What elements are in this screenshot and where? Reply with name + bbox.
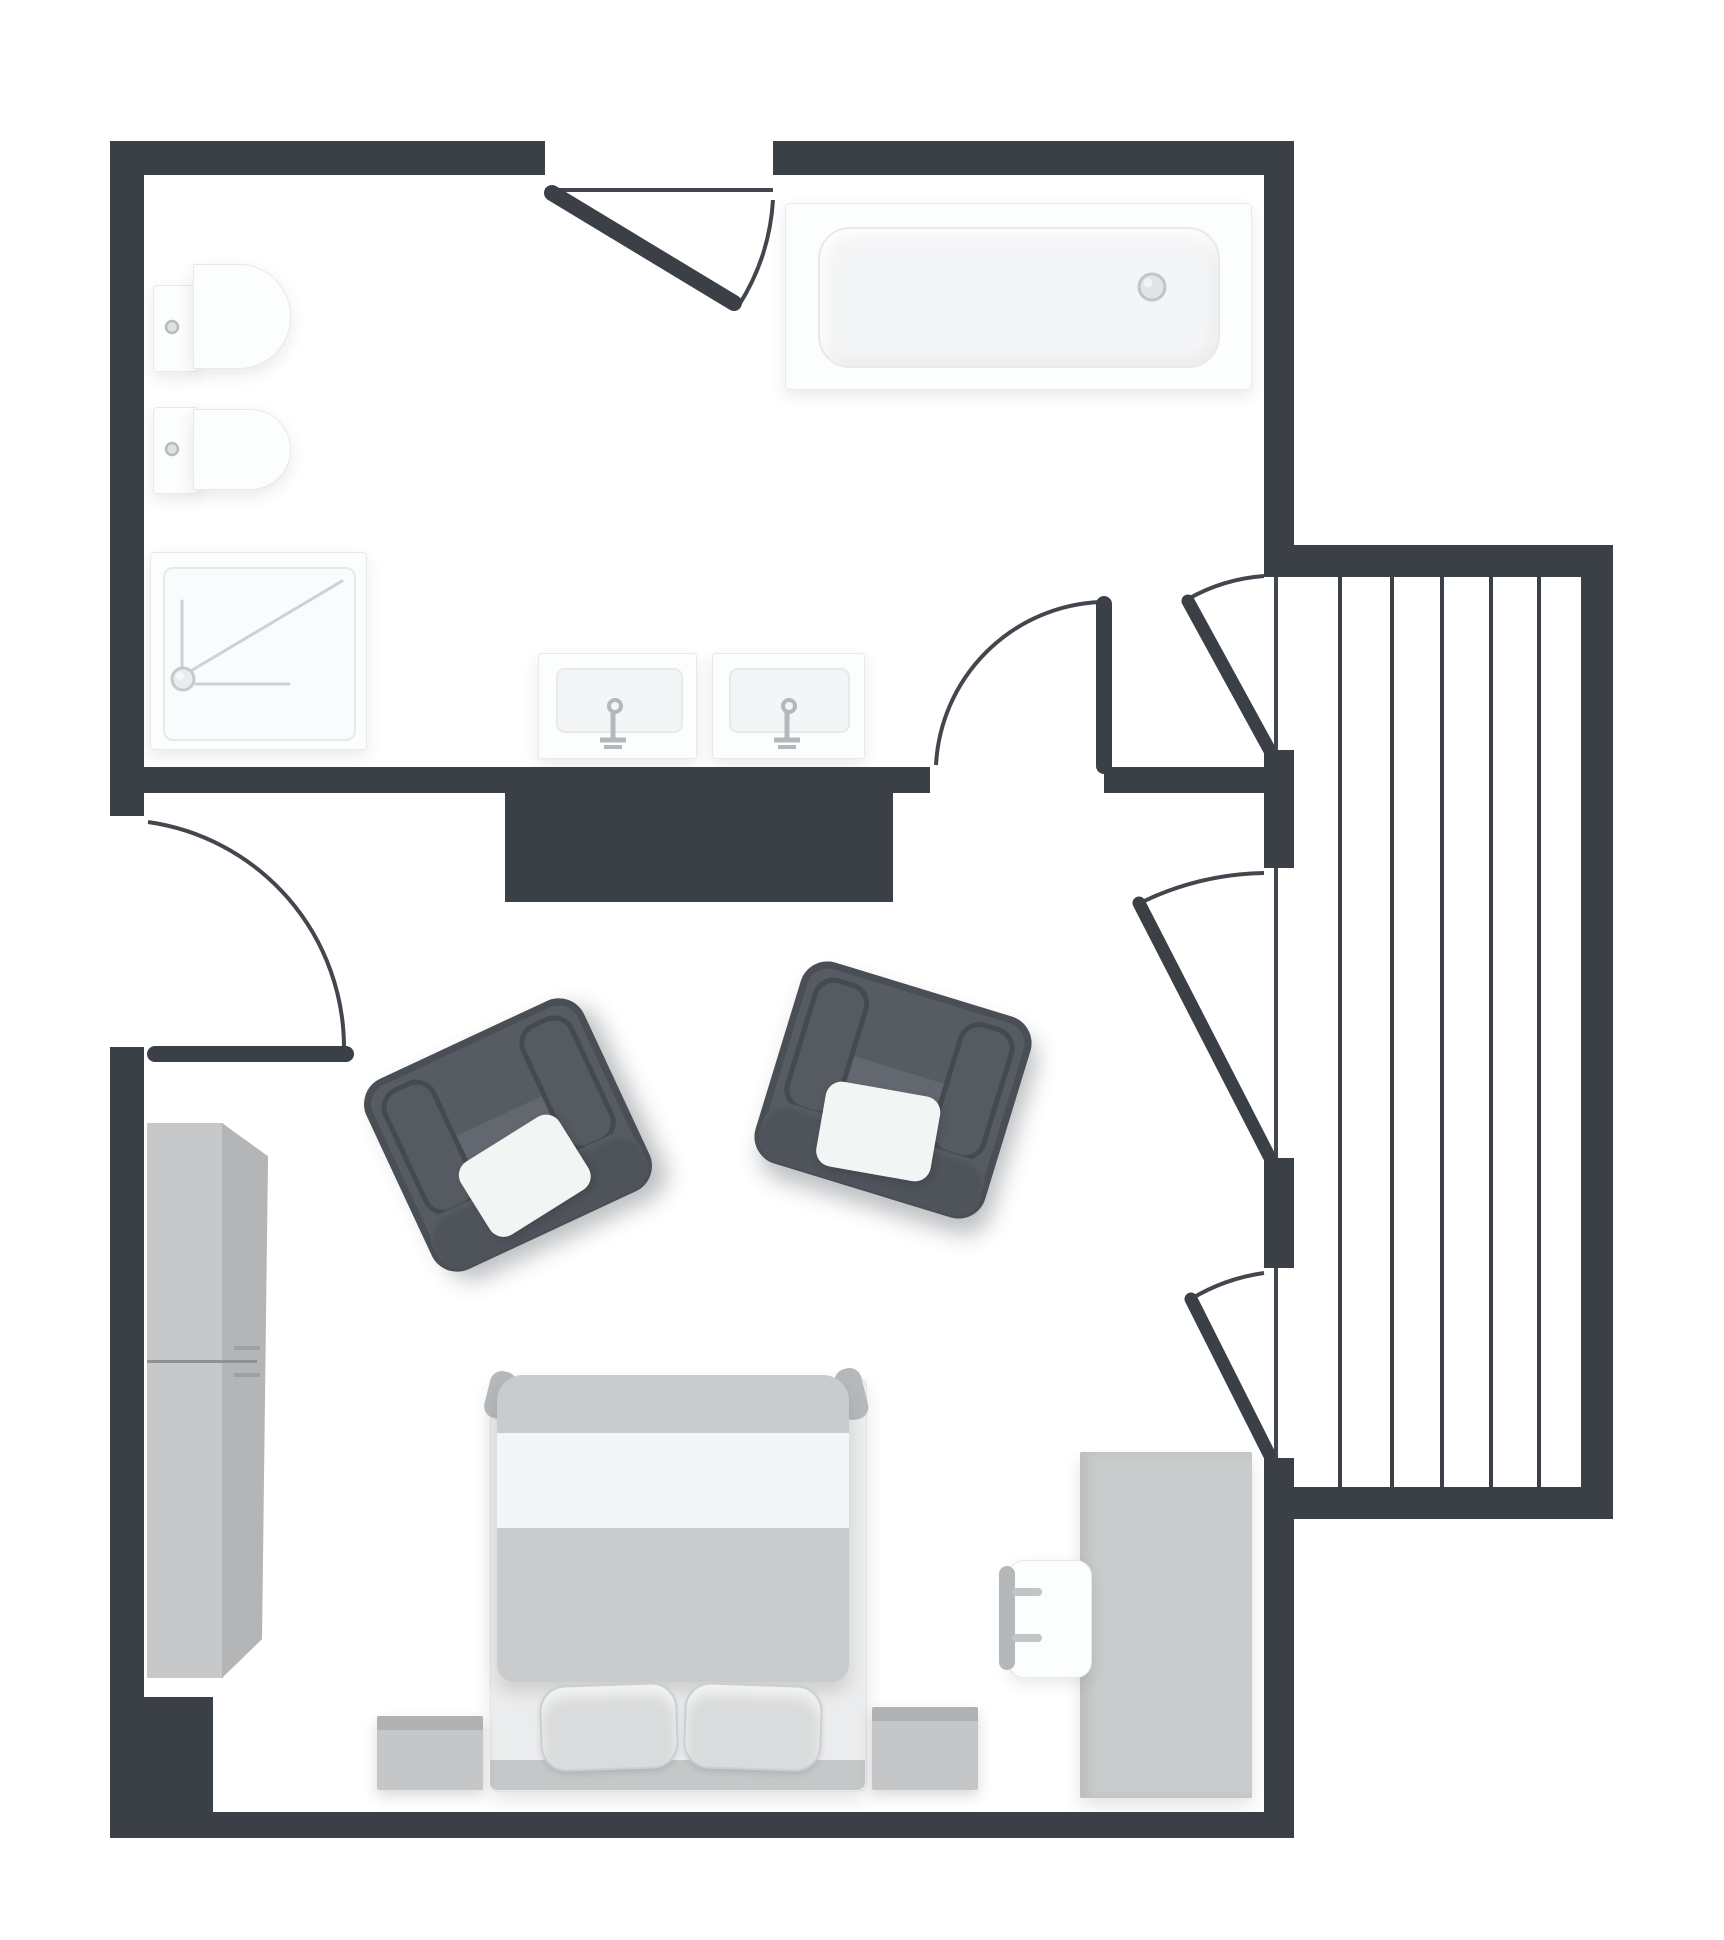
shower-lines	[172, 581, 342, 690]
faucet-left	[600, 700, 626, 747]
balcony-door-2	[1139, 873, 1269, 1156]
balcony-door-3	[1191, 1273, 1269, 1454]
entry-door-left	[148, 822, 346, 1054]
bathroom-inner-door	[936, 602, 1104, 766]
bathtub-drain	[1139, 274, 1165, 300]
doors-and-lines-layer	[0, 0, 1724, 1940]
bidet-flush-button	[166, 443, 178, 455]
floor-plan	[0, 0, 1724, 1940]
shower-drain	[172, 668, 194, 690]
faucet-right	[774, 700, 800, 747]
bathroom-top-door	[545, 190, 773, 305]
toilet-flush-button	[166, 321, 178, 333]
balcony-door-1	[1188, 576, 1269, 749]
